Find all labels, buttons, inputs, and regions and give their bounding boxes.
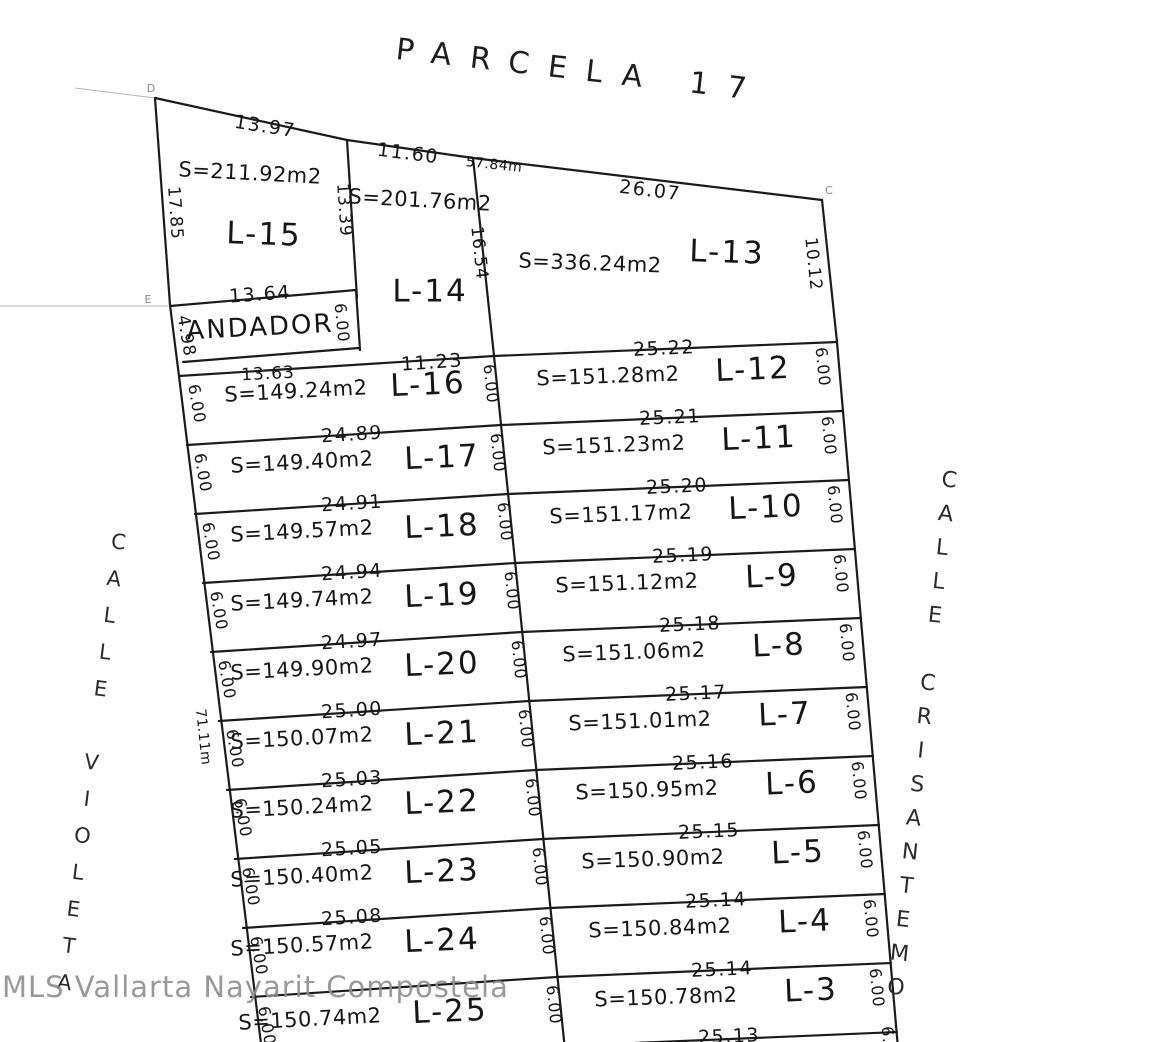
lot-top-measure: 25.16 <box>672 750 735 775</box>
lot-side-measure: 6.00 <box>877 1025 900 1042</box>
lot-side-measure: 6.00 <box>841 691 864 732</box>
lot-top-measure: 13.97 <box>233 111 298 142</box>
lot-area: S=150.78m2 <box>594 983 738 1012</box>
lot-top-measure: 25.05 <box>320 836 383 862</box>
lot-label: L-5 <box>770 833 825 871</box>
lot-top-measure: 25.22 <box>633 336 696 361</box>
lot-label: L-7 <box>757 695 812 733</box>
lot-top-measure: 25.18 <box>659 612 722 637</box>
lot-side-measure: 6.00 <box>811 346 834 387</box>
lot-side-measure: 6.00 <box>829 553 852 594</box>
lot-top-measure: 25.19 <box>652 543 715 568</box>
lot-top-measure: 25.03 <box>320 767 383 793</box>
lot-label: L-12 <box>715 350 792 389</box>
lot-area: S=151.23m2 <box>542 431 686 460</box>
lot-side-measure: 6.00 <box>479 363 502 404</box>
lot-side-measure: 6.00 <box>853 829 876 870</box>
lot-top-measure: 24.89 <box>320 422 383 448</box>
lot-side-measure: 6.00 <box>500 570 523 611</box>
lot-side-measure: 6.00 <box>190 452 216 494</box>
lot-area: S=211.92m2 <box>178 157 322 188</box>
lot-side-measure: 6.00 <box>823 484 846 525</box>
lot-side-measure: 6.00 <box>521 777 544 818</box>
lot-side-measure: 6.00 <box>493 501 516 542</box>
lot-bottom-measure: 13.64 <box>228 281 291 307</box>
lot-label: L-15 <box>226 215 303 254</box>
corner-marker: C <box>825 184 833 197</box>
lot-side-measure: 6.00 <box>542 984 565 1025</box>
lot-label: L-17 <box>404 438 481 477</box>
lot-label: L-8 <box>751 626 806 664</box>
lot-label: L-9 <box>744 557 799 595</box>
lot-side-measure: 6.00 <box>486 432 509 473</box>
lot-area: S=151.06m2 <box>562 638 706 667</box>
lot-top-measure: 25.00 <box>320 698 383 724</box>
lot-side-measure: 6.00 <box>847 760 870 801</box>
lot-label: L-10 <box>728 488 805 527</box>
lot-label: L-3 <box>783 971 838 1009</box>
lot-area: S=201.76m2 <box>348 184 492 215</box>
lot-area: S=336.24m2 <box>518 249 662 278</box>
lot-area: S=150.07m2 <box>230 722 374 753</box>
lot-area: S=149.74m2 <box>230 584 374 615</box>
lot-side-measure: 6.00 <box>514 708 537 749</box>
lot-side-measure: 6.00 <box>859 898 882 939</box>
lot-label: L-13 <box>689 233 766 272</box>
lot-top-measure: 25.14 <box>691 957 754 982</box>
lot-label: L-18 <box>404 507 481 546</box>
lot-side-measure: 16.54 <box>466 225 492 280</box>
row-line <box>259 1032 897 1042</box>
reference-line <box>75 88 155 98</box>
lot-side-measure: 6.00 <box>835 622 858 663</box>
lot-label: L-6 <box>764 764 819 802</box>
lot-label: L-4 <box>777 902 832 940</box>
plat-drawing: D E C 13.97 S=211.92m2 L-15 17.85 13.39 … <box>0 0 1165 1042</box>
lot-top-measure: 26.07 <box>618 176 682 205</box>
lot-label: L-22 <box>404 783 481 822</box>
lot-side-measure: 6.00 <box>507 639 530 680</box>
lot-top-measure: 25.08 <box>320 905 383 931</box>
lot-area: S=150.90m2 <box>581 845 725 874</box>
lot-top-measure: 25.21 <box>639 405 702 430</box>
lot-side-measure: 6.00 <box>535 915 558 956</box>
lot-label: L-20 <box>404 645 481 684</box>
lot-side-measure: 17.85 <box>163 186 187 241</box>
lot-side-measure: 6.00 <box>528 846 551 887</box>
lot-top-measure: 24.94 <box>320 560 383 586</box>
watermark-text: MLS Vallarta Nayarit Compostela <box>2 970 509 1004</box>
lot-area: S=151.28m2 <box>536 362 680 391</box>
lot-label: L-16 <box>390 365 467 404</box>
lot-area: S=149.57m2 <box>230 515 374 546</box>
plat-map-sheet: D E C 13.97 S=211.92m2 L-15 17.85 13.39 … <box>0 0 1165 1042</box>
lot-side-measure: 6.00 <box>184 383 210 425</box>
lot-area: S=149.40m2 <box>230 446 374 477</box>
lot-label: L-21 <box>404 714 481 753</box>
lot-top-measure: 25.15 <box>678 819 741 844</box>
lot-label: L-19 <box>404 576 481 615</box>
lot-top-measure: 25.17 <box>665 681 728 706</box>
lot-side-measure: 10.12 <box>800 236 826 291</box>
lot-area: S=151.17m2 <box>549 500 693 529</box>
corner-marker: E <box>145 293 152 306</box>
lot-top-measure: 25.13 <box>698 1024 761 1042</box>
lot-label: L-14 <box>392 274 467 310</box>
lot-label: L-23 <box>404 852 481 891</box>
corner-marker: D <box>147 82 155 95</box>
lot-area: S=150.95m2 <box>575 776 719 805</box>
lot-label: L-11 <box>721 419 798 458</box>
lot-side-measure: 6.00 <box>817 415 840 456</box>
lot-area: S=149.90m2 <box>230 653 374 684</box>
lot-area: S=151.01m2 <box>568 707 712 736</box>
lot-top-measure: 25.14 <box>685 888 748 913</box>
lot-top-measure: 24.97 <box>320 629 383 655</box>
lot-area: S=150.84m2 <box>588 914 732 943</box>
lot-top-measure: 24.91 <box>320 491 383 517</box>
lot-area: S=151.12m2 <box>555 569 699 598</box>
boundary-right <box>822 200 899 1042</box>
walkway-label: ANDADOR <box>186 309 335 347</box>
overall-left-length: 71.11m <box>192 708 214 766</box>
lot-top-measure: 11.60 <box>376 139 440 168</box>
lot-top-measure: 25.20 <box>646 474 709 499</box>
lot-label: L-24 <box>404 921 481 960</box>
